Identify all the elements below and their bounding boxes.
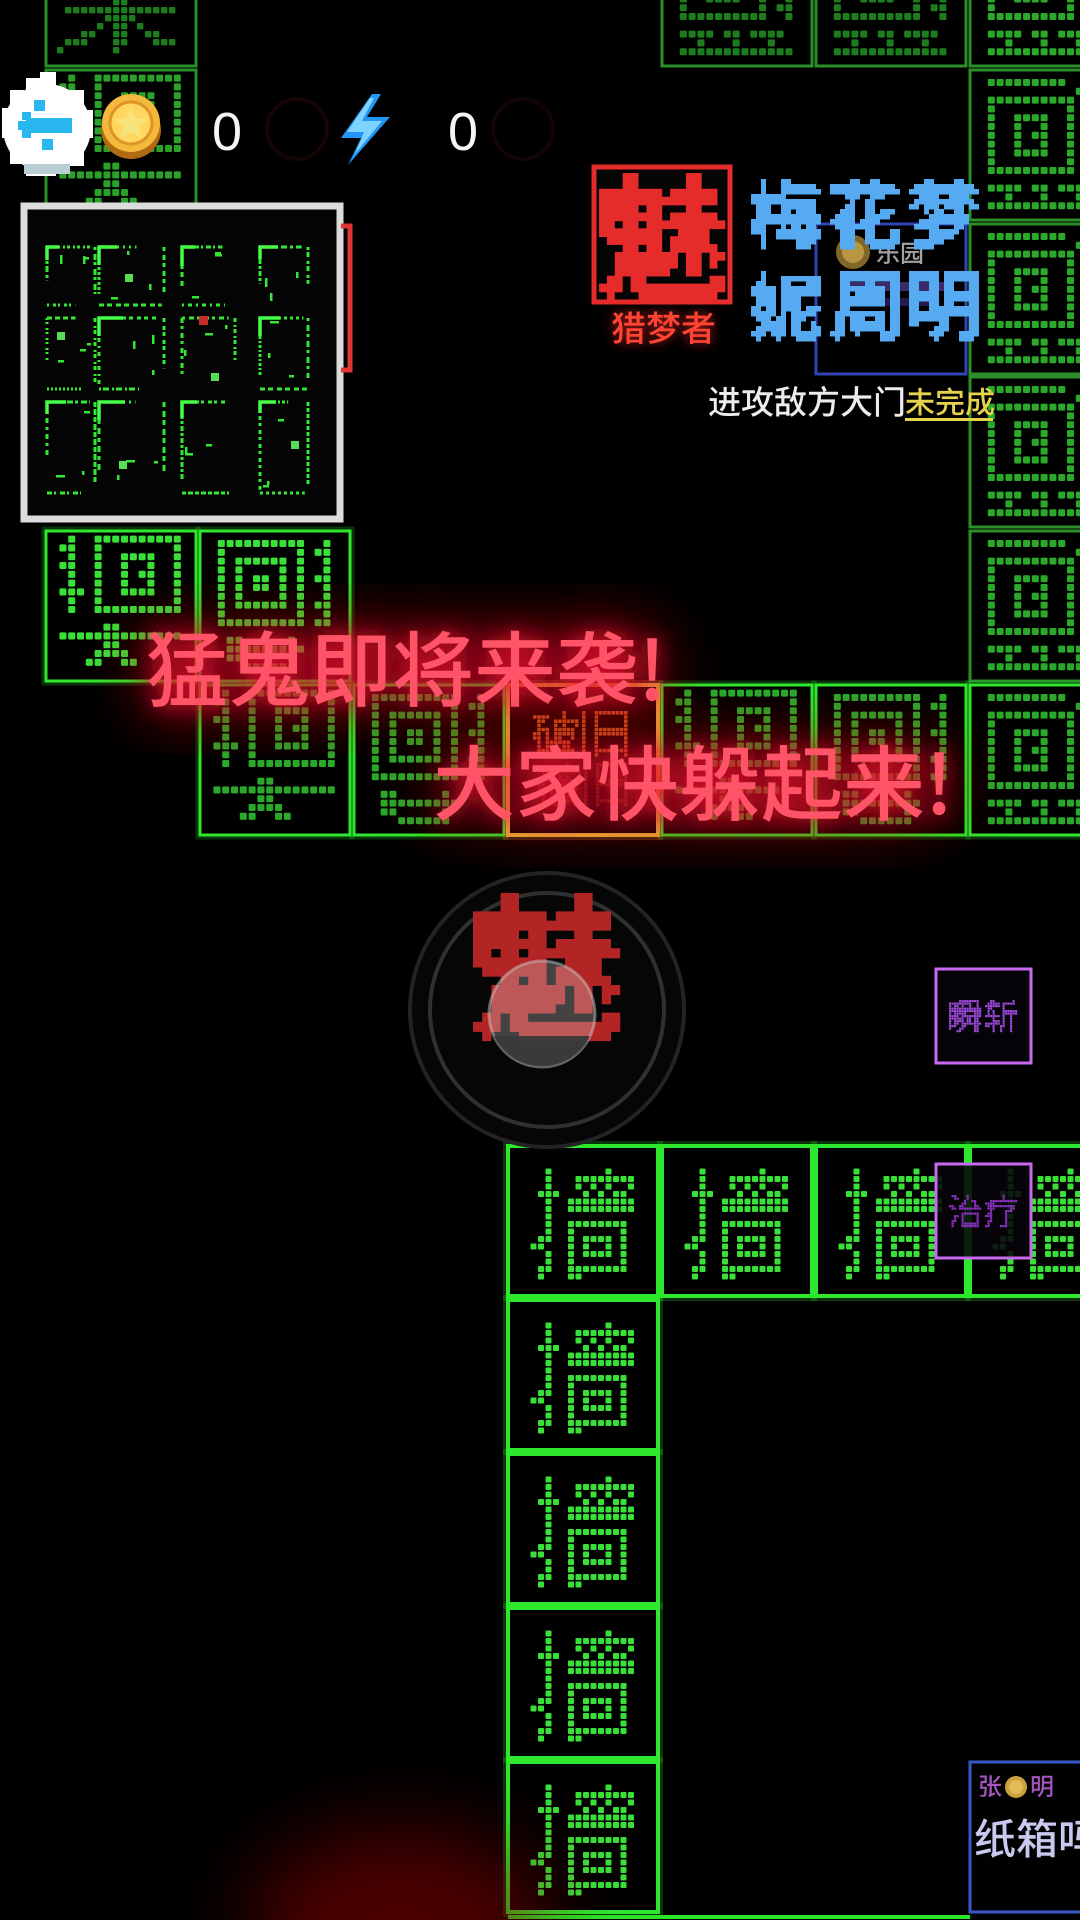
svg-text:0: 0 xyxy=(212,102,242,162)
svg-text:0: 0 xyxy=(448,102,478,162)
